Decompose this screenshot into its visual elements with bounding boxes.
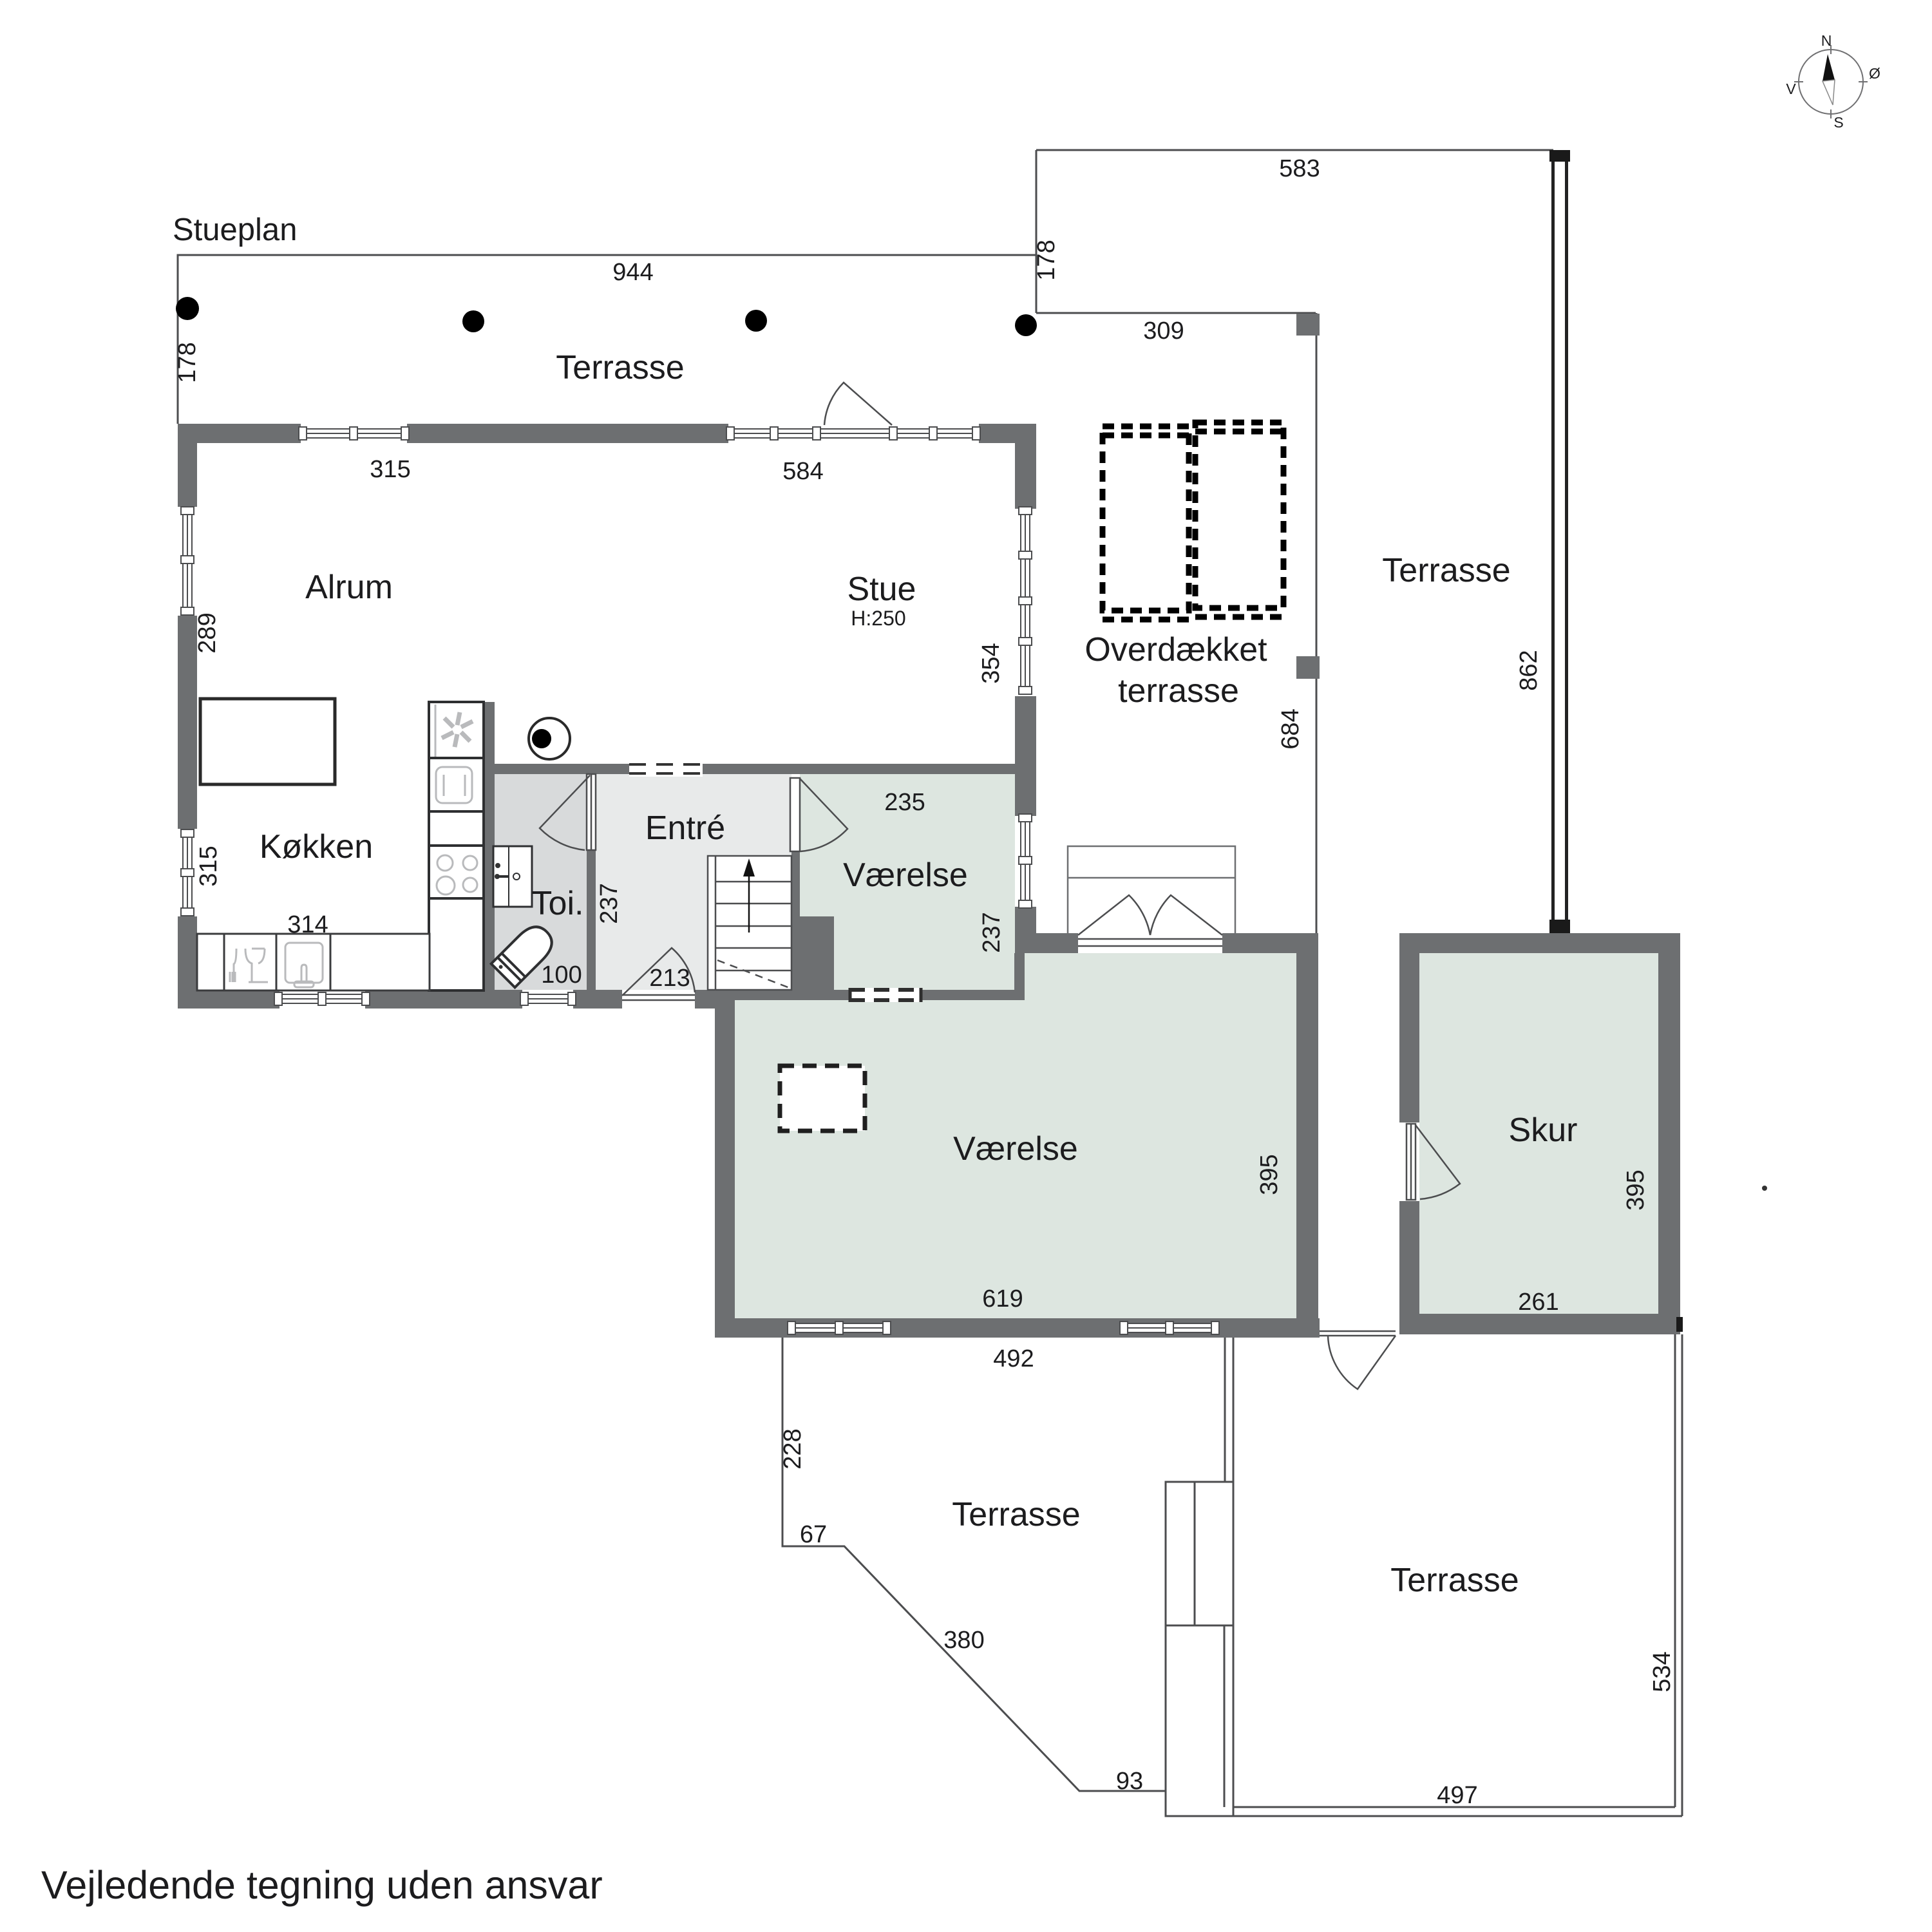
svg-text:67: 67: [800, 1521, 827, 1548]
svg-text:395: 395: [1622, 1170, 1649, 1210]
svg-text:V: V: [1786, 80, 1796, 97]
svg-text:534: 534: [1649, 1651, 1676, 1692]
svg-text:178: 178: [174, 342, 201, 383]
svg-text:Stue: Stue: [848, 571, 916, 608]
svg-text:289: 289: [194, 612, 221, 653]
svg-text:235: 235: [884, 789, 925, 816]
svg-text:315: 315: [195, 846, 222, 886]
svg-text:584: 584: [782, 458, 823, 485]
svg-text:Terrasse: Terrasse: [1382, 552, 1510, 589]
svg-text:354: 354: [978, 643, 1005, 683]
svg-text:315: 315: [370, 456, 410, 483]
svg-text:619: 619: [982, 1285, 1023, 1312]
svg-text:228: 228: [779, 1428, 806, 1469]
svg-text:862: 862: [1515, 650, 1542, 690]
svg-text:Entré: Entré: [645, 810, 725, 847]
svg-text:944: 944: [612, 259, 653, 286]
svg-text:684: 684: [1277, 708, 1304, 749]
svg-text:314: 314: [287, 911, 328, 938]
svg-text:237: 237: [978, 912, 1005, 952]
svg-text:Vejledende tegning uden ansvar: Vejledende tegning uden ansvar: [41, 1863, 603, 1907]
svg-text:237: 237: [596, 883, 623, 923]
svg-text:93: 93: [1116, 1768, 1143, 1795]
svg-text:261: 261: [1518, 1289, 1558, 1316]
svg-text:N: N: [1821, 32, 1832, 49]
svg-text:Terrasse: Terrasse: [952, 1496, 1080, 1533]
svg-text:terrasse: terrasse: [1118, 672, 1239, 710]
svg-text:H:250: H:250: [851, 607, 905, 630]
svg-text:Stueplan: Stueplan: [173, 213, 297, 247]
svg-text:Terrasse: Terrasse: [1390, 1562, 1519, 1599]
svg-text:Skur: Skur: [1509, 1112, 1578, 1149]
svg-text:S: S: [1833, 114, 1843, 131]
svg-text:492: 492: [993, 1345, 1034, 1372]
svg-text:Overdækket: Overdækket: [1084, 631, 1267, 668]
svg-text:213: 213: [649, 965, 690, 992]
svg-text:380: 380: [943, 1627, 984, 1654]
svg-text:Værelse: Værelse: [953, 1130, 1078, 1168]
svg-text:Værelse: Værelse: [843, 857, 968, 894]
svg-text:Toi.: Toi.: [532, 885, 584, 922]
svg-text:Ø: Ø: [1869, 65, 1880, 82]
svg-text:Alrum: Alrum: [305, 569, 393, 606]
svg-text:395: 395: [1256, 1154, 1283, 1195]
svg-text:100: 100: [541, 961, 582, 989]
svg-text:Køkken: Køkken: [260, 828, 373, 866]
svg-text:178: 178: [1033, 240, 1060, 280]
svg-text:497: 497: [1437, 1782, 1477, 1809]
svg-text:583: 583: [1279, 155, 1320, 182]
svg-text:309: 309: [1143, 317, 1184, 345]
svg-text:Terrasse: Terrasse: [556, 349, 684, 386]
